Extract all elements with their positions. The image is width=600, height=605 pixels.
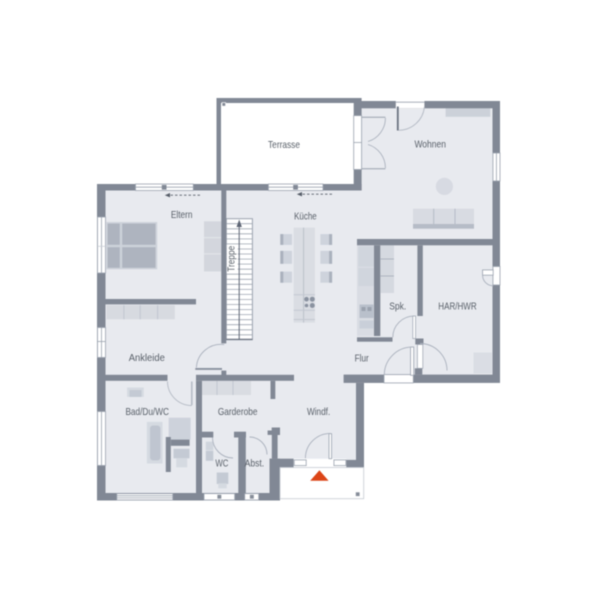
svg-text:Wohnen: Wohnen: [414, 140, 446, 151]
svg-text:Abst.: Abst.: [245, 458, 265, 469]
svg-text:WC: WC: [215, 458, 228, 469]
svg-text:Treppe: Treppe: [227, 246, 238, 272]
svg-text:Bad/Du/WC: Bad/Du/WC: [125, 407, 169, 418]
svg-text:Flur: Flur: [355, 353, 370, 364]
svg-text:Windf.: Windf.: [307, 407, 330, 418]
svg-text:Küche: Küche: [294, 212, 317, 223]
svg-text:Terrasse: Terrasse: [268, 140, 300, 151]
svg-text:Ankleide: Ankleide: [129, 353, 165, 364]
svg-text:Garderobe: Garderobe: [218, 407, 258, 418]
svg-text:Eltern: Eltern: [171, 210, 193, 221]
svg-text:HAR/HWR: HAR/HWR: [438, 301, 476, 312]
svg-text:Spk.: Spk.: [389, 301, 406, 312]
